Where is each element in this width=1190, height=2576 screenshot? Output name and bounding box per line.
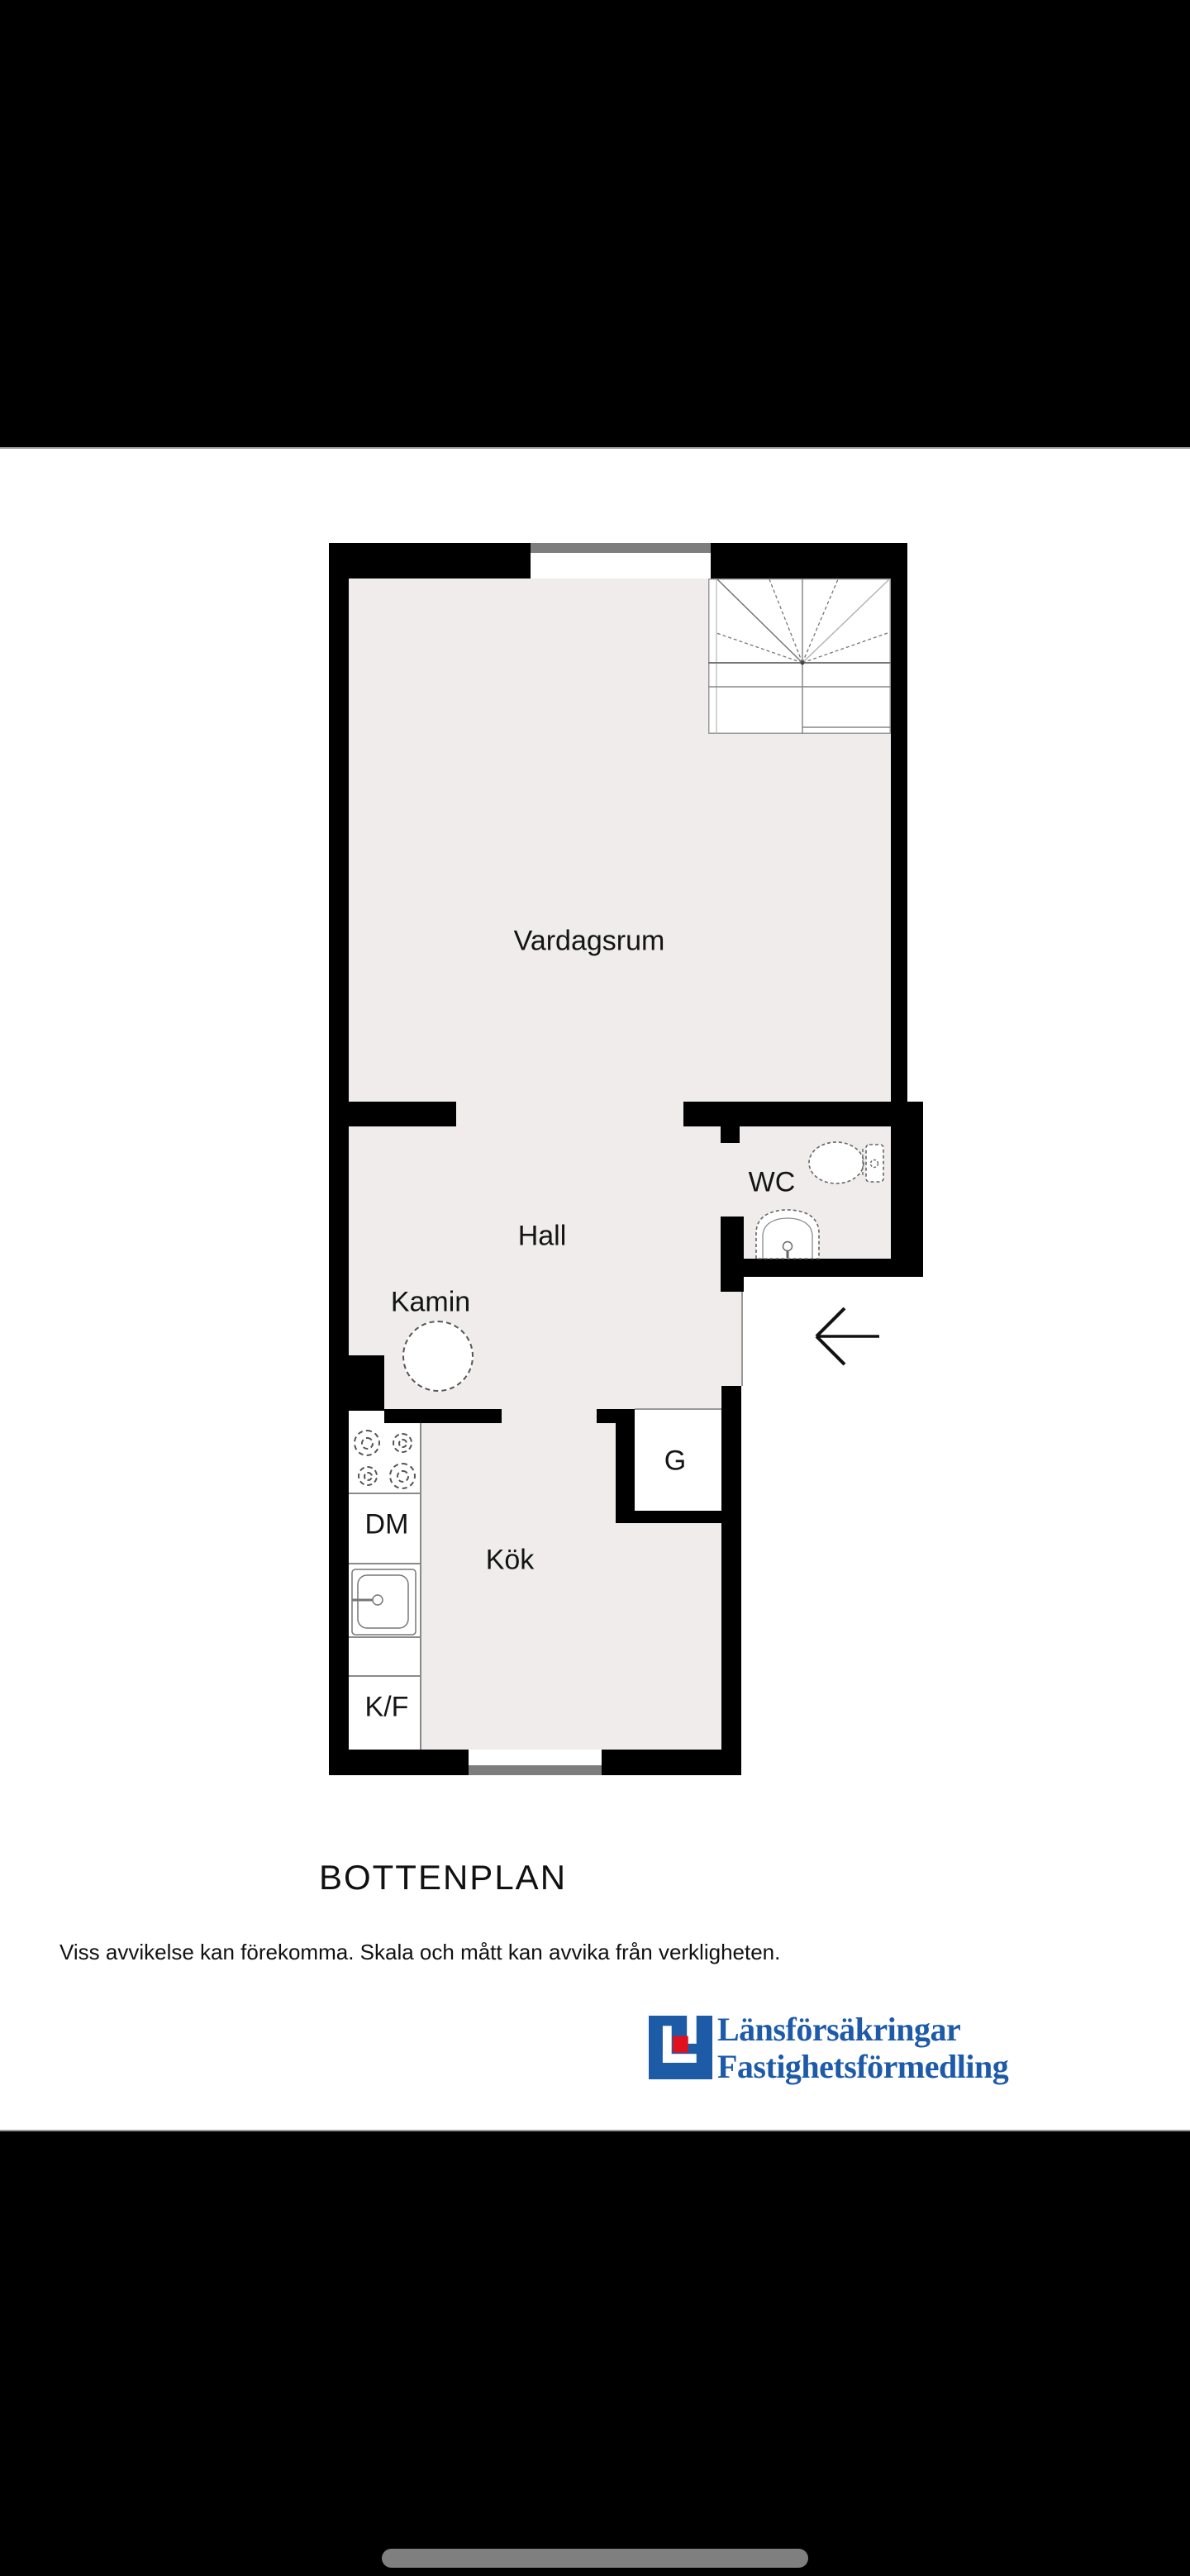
stove-burner-icon xyxy=(358,1466,378,1486)
wall-divider-right xyxy=(683,1102,891,1126)
room-label-kitchen: Kök xyxy=(486,1545,535,1577)
window-top-glazing xyxy=(531,543,711,553)
stairs-icon xyxy=(708,579,891,734)
wall-kitchen-top xyxy=(384,1409,502,1423)
stove-burner-icon xyxy=(354,1430,380,1456)
disclaimer-text: Viss avvikelse kan förekomma. Skala och … xyxy=(59,1940,780,1965)
brand-name-line1: Länsförsäkringar xyxy=(717,2011,1008,2048)
room-label-hall: Hall xyxy=(518,1221,567,1253)
wc-sink-icon xyxy=(752,1207,823,1259)
wall-closet-left xyxy=(616,1409,635,1523)
floor-opening-hall-kitchen xyxy=(502,1409,597,1423)
lansforsakringar-logo-icon xyxy=(649,2016,712,2079)
wall-top-left xyxy=(329,543,531,579)
closet-label: G xyxy=(664,1445,686,1478)
stove-burner-icon xyxy=(389,1463,416,1489)
plan-title: BOTTENPLAN xyxy=(319,1858,567,1897)
counter-divider xyxy=(349,1675,420,1677)
wall-left xyxy=(329,543,349,1775)
wall-wc-right xyxy=(891,1102,923,1277)
wall-kitchen-right xyxy=(721,1386,741,1775)
toilet-icon xyxy=(808,1139,886,1188)
floor-entry-doorway xyxy=(721,1292,742,1386)
wall-wc-left xyxy=(721,1217,744,1292)
kitchen-sink-icon xyxy=(351,1569,416,1636)
entrance-arrow-icon xyxy=(810,1302,884,1370)
floorplan-viewer: Vardagsrum Hall Kamin WC Kök G DM K/F BO… xyxy=(0,0,1190,2576)
wall-right-upper xyxy=(891,543,907,1126)
counter-divider xyxy=(349,1493,420,1494)
appliance-label-dishwasher: DM xyxy=(365,1509,409,1541)
scroll-indicator[interactable] xyxy=(382,2549,808,2568)
wall-chimney-block xyxy=(349,1355,384,1411)
wall-divider-left xyxy=(349,1102,456,1126)
letterbox-top xyxy=(0,0,1190,449)
wall-wc-bottom xyxy=(721,1259,923,1277)
wall-wc-left-stub xyxy=(721,1126,740,1143)
room-label-fireplace: Kamin xyxy=(391,1287,470,1319)
brand-name: Länsförsäkringar Fastighetsförmedling xyxy=(717,2011,1008,2085)
floor-opening-living-hall xyxy=(456,1102,683,1126)
counter-divider xyxy=(349,1636,420,1638)
wall-closet-bottom xyxy=(616,1511,721,1523)
appliance-label-fridge-freezer: K/F xyxy=(365,1692,409,1724)
counter-divider xyxy=(349,1563,420,1564)
floor-wc-door-gap xyxy=(721,1143,740,1217)
room-label-living-room: Vardagsrum xyxy=(514,926,665,958)
fireplace-icon xyxy=(402,1321,474,1392)
stove-burner-icon xyxy=(393,1433,412,1453)
entry-door-threshold xyxy=(741,1292,743,1386)
room-label-wc: WC xyxy=(749,1167,796,1199)
brand-name-line2: Fastighetsförmedling xyxy=(717,2048,1008,2085)
wall-top-right xyxy=(711,543,907,579)
letterbox-bottom xyxy=(0,2130,1190,2576)
window-bottom-glazing xyxy=(469,1765,602,1775)
